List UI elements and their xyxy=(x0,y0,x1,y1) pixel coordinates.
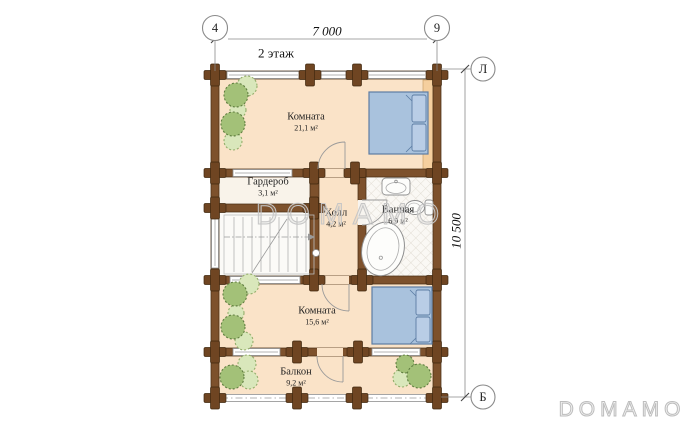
dimension-horizontal: 7 000 xyxy=(312,25,341,40)
floor-plan-drawing xyxy=(0,0,700,428)
plan-title: 2 этаж xyxy=(258,47,294,62)
room-name: Комната xyxy=(287,111,325,123)
room-name: Балкон xyxy=(280,366,311,378)
room-name: Комната xyxy=(298,305,336,317)
floor-plan: 2 этаж 7 000 10 500 4 9 Л Б Комната 21,1… xyxy=(0,0,700,428)
room-label-hall: Холл 4,2 м² xyxy=(325,207,348,228)
room-name: Ванная xyxy=(382,204,414,216)
room-label-bedroom-top: Комната 21,1 м² xyxy=(287,111,325,132)
room-label-balcony: Балкон 9,2 м² xyxy=(280,366,311,387)
room-name: Холл xyxy=(325,207,348,219)
room-area: 4,2 м² xyxy=(325,219,348,228)
room-label-wardrobe: Гардероб 3,1 м² xyxy=(247,176,288,197)
axis-marker-top-left: 4 xyxy=(212,21,218,35)
bed-icon-top xyxy=(369,92,428,154)
room-label-bathroom: Ванная 6,9 м² xyxy=(382,204,414,225)
room-area: 6,9 м² xyxy=(382,216,414,225)
room-area: 3,1 м² xyxy=(247,188,288,197)
room-label-bedroom-bottom: Комната 15,6 м² xyxy=(298,305,336,326)
axis-marker-right-top: Л xyxy=(479,62,487,76)
axis-marker-right-bottom: Б xyxy=(479,390,486,404)
room-name: Гардероб xyxy=(247,176,288,188)
dimension-vertical: 10 500 xyxy=(450,213,465,249)
room-area: 21,1 м² xyxy=(287,123,325,132)
axis-marker-top-right: 9 xyxy=(434,21,440,35)
bed-icon-bottom xyxy=(372,287,432,344)
room-area: 15,6 м² xyxy=(298,317,336,326)
sink-icon xyxy=(382,178,410,195)
room-area: 9,2 м² xyxy=(280,378,311,387)
